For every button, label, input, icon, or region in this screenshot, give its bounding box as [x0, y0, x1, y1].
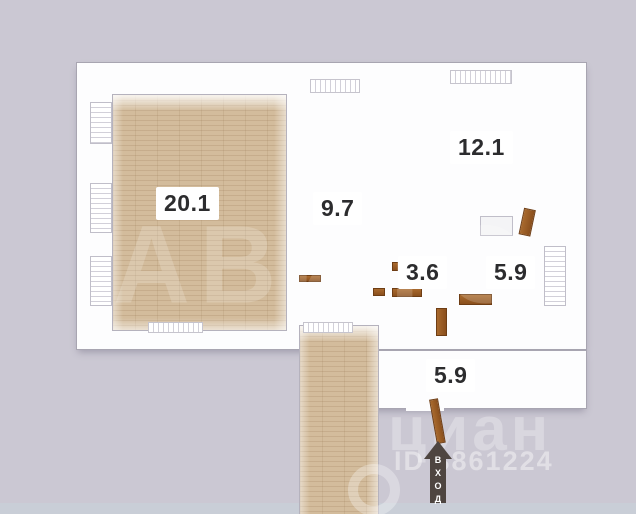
cabinet-icon [480, 216, 513, 236]
window-radiator-icon [310, 79, 360, 93]
window-radiator-icon [90, 256, 112, 306]
room-label-bedroom: 12.1 [450, 131, 513, 164]
room-label-kitchen: 9.7 [313, 192, 362, 225]
room-label-corridor: 5.9 [486, 256, 535, 289]
room-label-entry-hall: 5.9 [426, 359, 475, 392]
room-label-bathroom: 3.6 [398, 256, 447, 289]
radiator-icon [148, 322, 203, 333]
bathroom-door-icon [436, 308, 447, 336]
door-icon [299, 275, 321, 282]
entrance-arrow-icon: ВХОД [424, 441, 452, 503]
wardrobe-shelves-icon [544, 246, 566, 306]
shelf-icon [459, 294, 492, 305]
watermark-listing-id: ID 3861224 [394, 446, 554, 477]
entrance-arrow-label: ВХОД [430, 459, 446, 503]
floorplan-image: АВИТО циан ID 3861224 20.1 9.7 12.1 3.6 … [0, 0, 636, 514]
window-radiator-icon [90, 102, 112, 144]
window-radiator-icon [450, 70, 512, 84]
shelf-icon [392, 288, 422, 297]
radiator-icon [303, 322, 353, 333]
door-hinge-icon [373, 288, 385, 296]
watermark-logo-ring-icon [348, 464, 400, 514]
window-radiator-icon [90, 183, 112, 233]
room-label-living: 20.1 [156, 187, 219, 220]
